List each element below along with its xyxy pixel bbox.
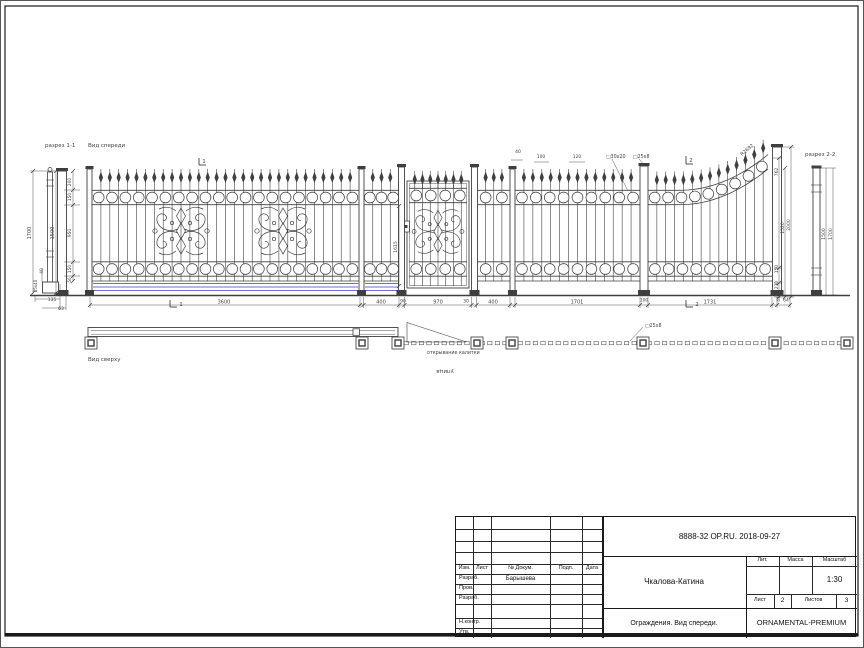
tb-row-prov: Пров. [457,584,493,594]
ornament-motif [255,207,311,254]
tb-sheets-number: 3 [836,594,857,608]
top-view [85,323,853,350]
tb-col-podp: Подп. [550,564,582,574]
dim-label: Вид сверху [88,357,121,363]
dim-label: 150 [774,265,780,274]
dim-label: 150 [67,265,73,274]
dim-label: 63 [58,306,64,312]
dim-label: 950 [67,229,73,238]
dim-label: 400 [488,300,498,306]
dim-label: 100 [537,154,546,160]
tb-col-data: Дата [582,564,602,574]
dim-label: 762 [774,168,780,177]
tb-col-list: Лист [473,564,491,574]
dim-label: Вид спереди [88,143,126,149]
tb-row-nkontr: Н.контр. [457,618,495,628]
dim-label: 1 [179,302,183,308]
tb-designer-name: Барышева [491,574,550,584]
dim-label: 1 [202,159,206,165]
tb-sheet-label: Лист [746,594,774,608]
dim-label: 1700 [27,227,33,240]
tb-scale-value: 1:30 [812,566,857,594]
dim-label: 1500 [821,228,827,240]
dim-label: □25х8 [633,154,650,160]
tb-sheet-number: 2 [774,594,791,608]
dimension-lines [30,145,836,310]
dim-label: разрез 1-1 [45,143,75,149]
dim-label: □25х8 [645,323,662,329]
dim-label: открывание калитки [427,351,480,356]
dim-label: 3600 [218,300,231,306]
tb-doc-title: Ограждения. Вид спереди. [602,608,746,638]
drawing-sheet: разрез 1-1Вид спередиразрез 2-2Вид сверх… [0,0,864,648]
tb-row-utv: Утв. [457,628,493,638]
dim-label: 1615 [393,241,399,253]
dim-label: 2 [689,158,693,164]
dim-label: 50 [67,277,72,283]
dim-label: 200 [67,178,73,187]
dim-label: 2 [695,302,699,308]
dim-label: □30х20 [606,154,626,160]
tb-col-doc: № Докум. [491,564,550,574]
dim-label: 1701 [571,300,584,306]
dim-label: 970 [433,300,443,306]
dim-label: улица [436,368,453,374]
dim-label: 135 [48,297,57,303]
tb-mass-label: Масса [779,556,812,566]
tb-row-razrab2: Разраб. [457,594,493,604]
dim-label: 400 [376,300,386,306]
dim-label: 230 [774,281,780,290]
dim-label: 1700 [828,228,834,240]
dim-label: 1520 [780,222,786,234]
dim-label: 90 [400,299,406,305]
dim-label: 150 [67,193,73,202]
tb-object-name: Чкалова-Катина [602,556,746,608]
dim-label: 64 [783,298,789,304]
tb-doc-code: 8888-32 OP.RU. 2018-09-27 [602,517,857,556]
tb-col-izm: Изм. [456,564,473,574]
front-view [30,140,850,296]
tb-brand: ORNAMENTAL-PREMIUM [746,608,857,638]
dim-label: 1500 [50,227,56,240]
tb-sheets-label: Листов [791,594,836,608]
title-block: Изм. Лист № Докум. Подп. Дата Разраб. Ба… [455,516,856,637]
tb-row-razrab: Разраб. [457,574,493,584]
dim-label: 100 [640,298,649,304]
dim-label: 30 [463,299,469,305]
dim-label: 40 [39,268,45,274]
dim-label: 2000 [786,219,792,231]
dim-label: разрез 2-2 [805,152,835,158]
dim-label: 1731 [704,300,717,306]
dim-label: 40 [515,149,521,155]
tb-lit-label: Лит. [746,556,779,566]
tb-scale-label: Масштаб [812,556,857,566]
dim-label: 64 [776,296,781,302]
dim-label: 120 [573,154,582,160]
dim-label: 85х40 [33,279,38,292]
